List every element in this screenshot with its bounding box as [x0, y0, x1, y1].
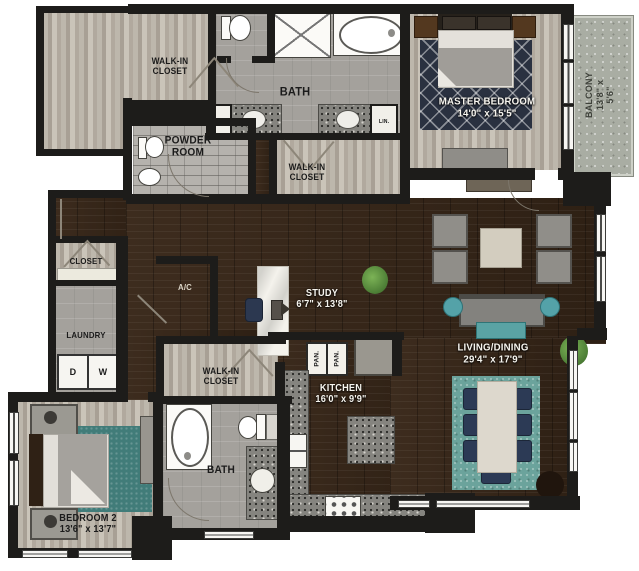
bath2-toilet-bowl — [238, 416, 258, 439]
window — [569, 350, 578, 390]
shower-icon — [271, 12, 331, 58]
wall — [48, 190, 56, 400]
dining-chair-r3 — [515, 440, 532, 462]
window — [563, 24, 574, 60]
master-dresser — [442, 148, 508, 170]
room-label-study: STUDY 6'7" x 13'8" — [296, 288, 347, 310]
wall — [153, 396, 163, 538]
washer-box: W — [87, 354, 119, 390]
room-label-balcony: BALCONY 13'8" x 5'6" — [585, 72, 617, 118]
dryer-box: D — [57, 354, 89, 390]
wall — [577, 328, 607, 340]
master-bed-fold — [438, 68, 456, 86]
wall — [156, 256, 218, 264]
study-chair — [245, 298, 263, 322]
room-label-living-dining: LIVING/DINING 29'4" x 17'9" — [457, 342, 528, 366]
wall — [210, 256, 218, 336]
dryer-label: D — [70, 367, 77, 377]
wall — [563, 172, 611, 206]
window — [78, 550, 132, 558]
wall — [283, 516, 429, 532]
wall — [53, 280, 119, 286]
wall — [48, 190, 132, 198]
master-bed-pillow-left — [442, 16, 476, 30]
living-column — [536, 471, 564, 499]
floor-plan: LIN. LIN. D W PAN. PAN. — [0, 0, 639, 571]
linen-right-label: LIN. — [379, 119, 389, 126]
armchair-2 — [432, 250, 468, 284]
master-tub-drain — [388, 29, 395, 37]
pantry-1-label: PAN. — [313, 351, 320, 367]
pantry-2-label: PAN. — [333, 351, 340, 367]
side-table-left — [443, 297, 463, 317]
washer-label: W — [99, 367, 108, 377]
wall — [156, 336, 164, 398]
dining-chair-r2 — [515, 414, 532, 436]
master-bed-pillow-right — [477, 16, 511, 30]
door-entry — [60, 199, 62, 239]
room-label-walk-in-closet-master: WALK-IN CLOSET — [289, 162, 326, 182]
bath2-tub-drain — [184, 452, 191, 460]
powder-toilet-bowl — [145, 136, 164, 158]
study-monitor-arrow — [281, 302, 290, 316]
side-table-right — [540, 297, 560, 317]
refrigerator-icon — [354, 336, 396, 376]
wall — [403, 168, 535, 180]
wall — [392, 332, 402, 376]
master-nightstand-right — [512, 16, 536, 38]
pantry-2-box: PAN. — [326, 342, 348, 376]
master-nightstand-left — [414, 16, 438, 38]
window — [563, 106, 574, 150]
bed2-lamp-top — [44, 411, 57, 424]
wall — [116, 236, 128, 398]
window — [9, 412, 19, 454]
window — [204, 531, 254, 539]
wall — [205, 133, 408, 140]
window — [563, 62, 574, 104]
room-label-laundry: LAUNDRY — [66, 331, 105, 341]
armchair-3 — [536, 214, 572, 248]
armchair-4 — [536, 250, 572, 284]
room-label-powder-room: POWDER ROOM — [165, 135, 212, 160]
room-label-bedroom2: BEDROOM 2 13'6" x 13'7" — [59, 513, 116, 535]
wall — [425, 493, 475, 533]
room-label-master-bedroom: MASTER BEDROOM 14'0" x 15'5" — [439, 96, 535, 120]
wall — [128, 4, 574, 14]
room-label-master-bath: BATH — [280, 85, 311, 98]
plant-study-icon — [362, 266, 388, 294]
wall — [208, 6, 216, 136]
room-label-ac: A/C — [178, 283, 192, 293]
bath2-toilet-tank — [256, 414, 266, 440]
wall — [267, 6, 275, 62]
kitchen-island — [347, 416, 395, 464]
wall — [36, 6, 44, 156]
wall — [36, 149, 132, 156]
living-center-table — [480, 228, 522, 268]
wall — [156, 336, 286, 344]
window — [22, 550, 68, 558]
master-sink-right — [336, 110, 360, 129]
window — [9, 460, 19, 506]
powder-sink — [138, 168, 161, 186]
armchair-1 — [432, 214, 468, 248]
room-label-hall-closet: CLOSET — [70, 257, 103, 267]
window — [569, 392, 578, 440]
cooktop-icon — [325, 496, 361, 518]
wall — [268, 332, 404, 340]
floor-walk-in-closet-top-wing — [43, 98, 124, 150]
bed2-lamp-bottom — [44, 515, 57, 528]
wall — [130, 100, 208, 126]
wall — [248, 126, 256, 204]
dining-chair-r1 — [515, 388, 532, 410]
coffee-table — [476, 322, 526, 339]
wall — [156, 396, 292, 404]
bed2-fold — [71, 470, 105, 504]
window — [596, 214, 606, 252]
wc-toilet-bowl — [229, 15, 251, 41]
room-label-walk-in-closet-top: WALK-IN CLOSET — [152, 56, 189, 76]
window — [596, 256, 606, 302]
wall — [126, 194, 408, 204]
room-label-bath2: BATH — [207, 464, 235, 476]
bath2-sink — [250, 468, 275, 493]
window — [398, 500, 430, 508]
bed2-headboard — [29, 434, 43, 506]
room-label-walk-in-closet-bed2: WALK-IN CLOSET — [203, 366, 240, 386]
room-label-kitchen: KITCHEN 16'0" x 9'9" — [315, 383, 366, 405]
window — [569, 442, 578, 472]
window — [436, 500, 530, 508]
dining-table — [477, 381, 517, 473]
wall — [269, 138, 277, 202]
wall — [8, 392, 120, 402]
pantry-1-box: PAN. — [306, 342, 328, 376]
wall — [200, 118, 256, 126]
